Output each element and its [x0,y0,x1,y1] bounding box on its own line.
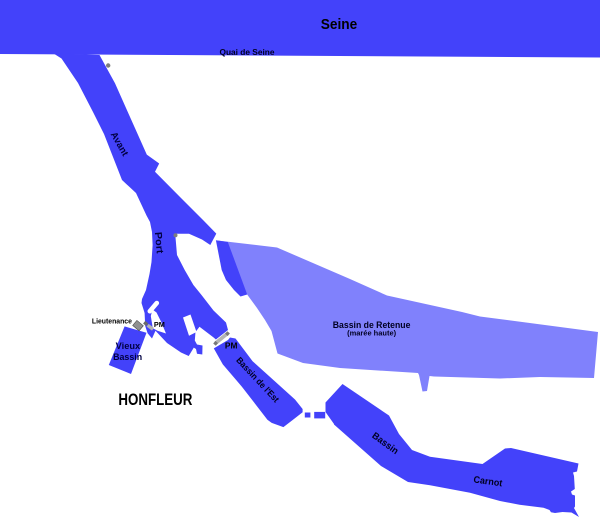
svg-text:Lieutenance: Lieutenance [92,317,132,326]
svg-text:PM: PM [225,341,238,350]
svg-text:(marée haute): (marée haute) [347,331,396,338]
svg-text:Vieux: Vieux [116,341,141,352]
svg-text:Seine: Seine [321,16,358,33]
svg-text:Quai de Seine: Quai de Seine [220,47,275,57]
svg-text:Port: Port [152,232,165,255]
svg-text:Bassin: Bassin [113,352,142,363]
svg-text:HONFLEUR: HONFLEUR [118,390,192,409]
svg-text:PM: PM [154,320,165,329]
